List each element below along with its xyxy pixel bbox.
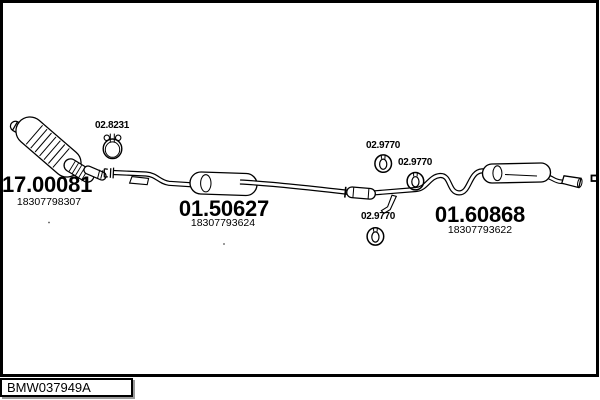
catalytic-converter-code-label: 17.00081 bbox=[2, 174, 92, 196]
flange-tick bbox=[345, 187, 346, 198]
clamp-code-label: 02.8231 bbox=[95, 121, 129, 131]
hanger2-code-label: 02.9770 bbox=[398, 158, 432, 168]
print-speck bbox=[223, 243, 225, 245]
hanger-ring-icon-3 bbox=[367, 228, 384, 245]
pipe-bracket-icon bbox=[130, 177, 149, 185]
rear-muffler-code-label: 01.60868 bbox=[435, 204, 525, 226]
exhaust-line-art bbox=[0, 0, 600, 400]
end-marker-square bbox=[592, 176, 598, 182]
hanger3-code-label: 02.9770 bbox=[361, 212, 395, 222]
hanger1-code-label: 02.9770 bbox=[366, 141, 400, 151]
sleeve-joint-drawing bbox=[347, 187, 376, 199]
rear-muffler-part-number: 18307793622 bbox=[448, 225, 512, 236]
diagram-id-text: BMW037949A bbox=[7, 380, 91, 395]
diagram-id-plate: BMW037949A bbox=[0, 378, 133, 397]
mid-muffler-part-number: 18307793624 bbox=[191, 218, 255, 229]
clamp-icon bbox=[103, 134, 122, 159]
catalytic-converter-part-number: 18307798307 bbox=[17, 197, 81, 208]
exhaust-tip-drawing bbox=[562, 176, 583, 188]
hanger-ring-icon-1 bbox=[375, 155, 392, 172]
diagram-canvas: 02.8231 17.00081 18307798307 01.50627 18… bbox=[0, 0, 600, 400]
print-speck bbox=[48, 222, 50, 224]
rear-muffler-drawing bbox=[483, 163, 551, 183]
hanger-ring-icon-2 bbox=[407, 173, 424, 190]
